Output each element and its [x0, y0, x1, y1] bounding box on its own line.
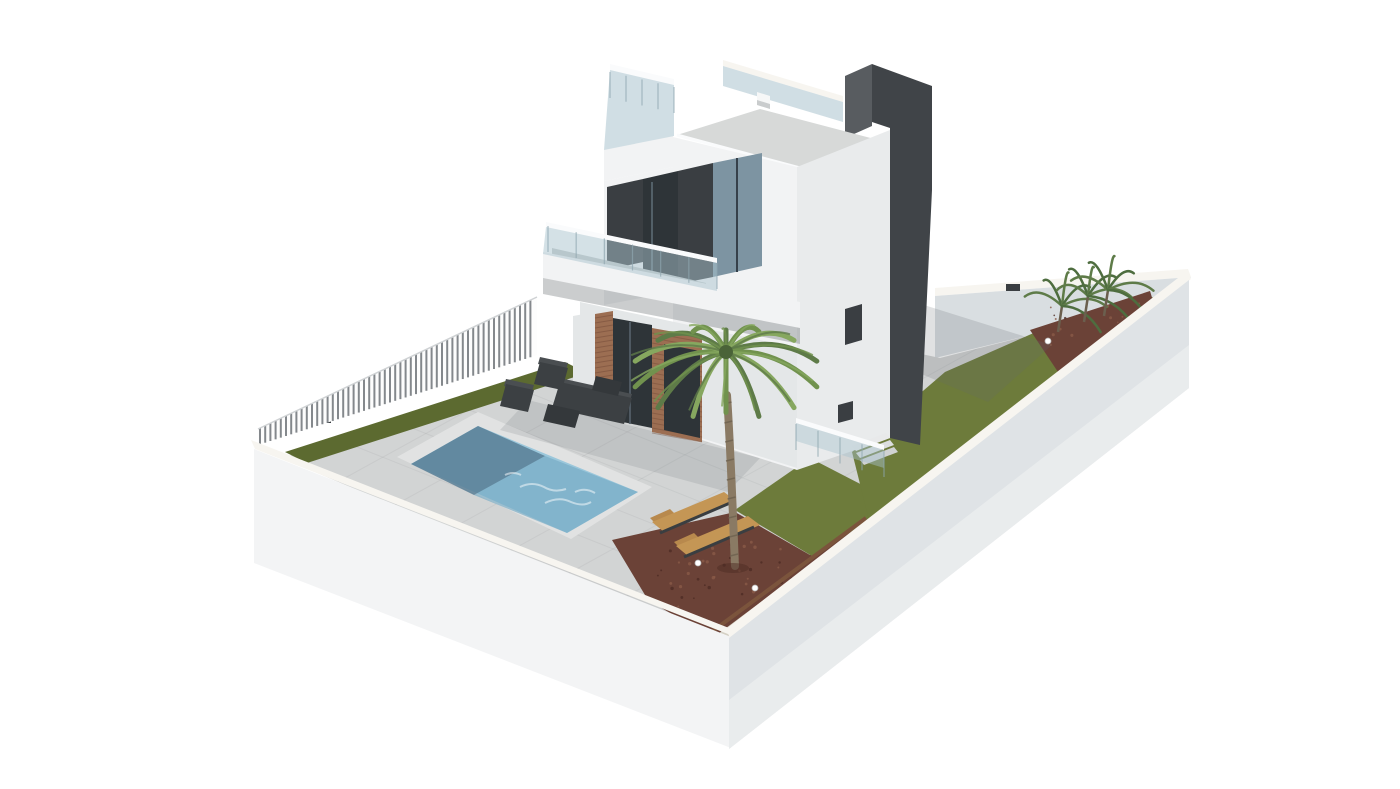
mulch-speckle [743, 545, 746, 548]
render-canvas: 3D architectural render of a modern whit… [0, 0, 1400, 789]
mulch-speckle [745, 583, 748, 586]
mulch-speckle [712, 552, 715, 555]
mulch-speckle [779, 548, 782, 551]
ground-light [1045, 338, 1051, 344]
mulch-speckle [680, 596, 683, 599]
mulch-speckle [1053, 314, 1055, 316]
mulch-speckle [679, 585, 682, 588]
mulch-speckle [1052, 333, 1055, 336]
mulch-speckle [1121, 316, 1123, 318]
stair-tower-side [845, 64, 872, 138]
mulch-speckle [712, 576, 715, 579]
mulch-speckle [741, 593, 743, 595]
side-window [845, 304, 862, 345]
mulch-speckle [697, 578, 700, 581]
mulch-speckle [669, 549, 672, 552]
mulch-speckle [1109, 316, 1112, 319]
mulch-speckle [778, 561, 780, 563]
palm-base-shadow [717, 563, 749, 573]
mulch-speckle [747, 578, 749, 580]
mulch-speckle [749, 568, 752, 571]
mulch-speckle [1070, 334, 1073, 337]
mulch-speckle [711, 547, 714, 550]
mulch-speckle [670, 587, 673, 590]
mulch-speckle [693, 597, 695, 599]
ground-light [695, 560, 701, 566]
mulch-speckle [729, 557, 731, 559]
mulch-speckle [657, 575, 659, 577]
mulch-speckle [753, 546, 756, 549]
mulch-speckle [750, 541, 753, 544]
mulch-speckle [678, 561, 680, 563]
mulch-speckle [660, 569, 662, 571]
mulch-speckle [669, 582, 672, 585]
mulch-speckle [702, 560, 705, 563]
ground-light [752, 585, 758, 591]
villa-render-page: 3D architectural render of a modern whit… [0, 0, 1400, 789]
mulch-speckle [704, 584, 706, 586]
mulch-speckle [677, 606, 679, 608]
mulch-speckle [706, 560, 709, 563]
mulch-speckle [1050, 306, 1052, 308]
mulch-speckle [777, 567, 779, 569]
villa-render: 3D architectural render of a modern whit… [0, 0, 1400, 789]
mulch-speckle [1117, 321, 1119, 323]
mulch-speckle [708, 586, 711, 589]
mulch-speckle [687, 572, 690, 575]
mulch-speckle [760, 561, 762, 563]
mulch-speckle [688, 562, 691, 565]
mulch-speckle [1055, 318, 1057, 320]
mulch-speckle [1064, 317, 1067, 320]
wall-vent [1006, 284, 1020, 291]
palm-crown [719, 345, 733, 359]
